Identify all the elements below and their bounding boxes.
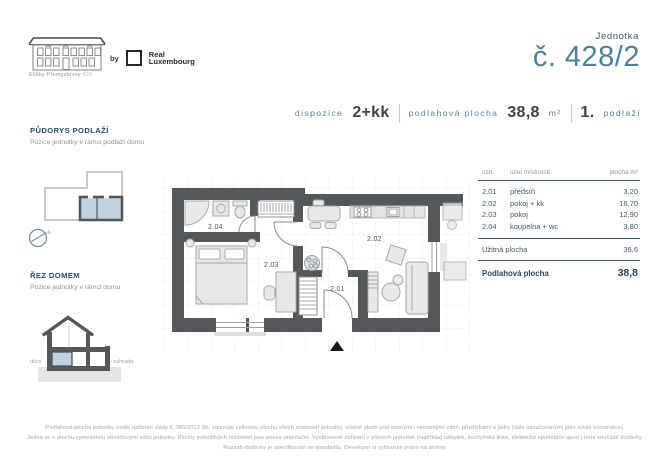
usable-area-row: Užitná plocha 36,6: [478, 239, 640, 260]
total-area-row: Podlahová plocha 38,8: [478, 261, 640, 285]
area-value: 38,8: [507, 104, 539, 122]
section-section-title: ŘEZ DOMEM: [30, 271, 80, 280]
room-label-201: 2.01: [330, 286, 345, 293]
area-unit: m²: [549, 108, 562, 118]
brand-logo: by Real Luxembourg: [110, 50, 195, 66]
room-label-203: 2.03: [264, 262, 279, 269]
building-address: Elišky Přemyslovny 428: [29, 72, 92, 78]
disclaimer-line: Rozsah dodávky je specifikován ve standa…: [20, 443, 650, 453]
bedside-lamp: [186, 239, 194, 247]
plan-section-subtitle: Pozice jednotky v rámci podlaží domu: [30, 139, 144, 146]
floor-position-minimap: s: [20, 163, 170, 255]
floorplan-datasheet-page: Elišky Přemyslovny 428 by Real Luxembour…: [0, 0, 670, 474]
table-row: 2.03 pokoj 12,90: [478, 209, 640, 221]
spec-line: dispozice 2+kk podlahová plocha 38,8 m² …: [180, 100, 641, 126]
floor-label: podlaží: [603, 108, 641, 118]
desk-chair: [264, 286, 275, 300]
unit-highlight-section: [52, 352, 72, 366]
unit-highlight: [80, 197, 122, 220]
compass-icon: s: [30, 230, 51, 247]
plan-section-title: PŮDORYS PODLAŽÍ: [30, 126, 109, 135]
washing-machine: [213, 201, 229, 216]
table-header: ozn. účel místnosti plocha m²: [478, 169, 640, 180]
brand-square-icon: [126, 50, 142, 66]
unit-number: č. 428/2: [533, 43, 640, 72]
sofa: [406, 262, 428, 314]
brand-by-label: by: [110, 54, 119, 66]
disclaimer-line: Podlahová plocha jednotky podle nařízení…: [20, 423, 650, 433]
bed: [196, 246, 247, 304]
unit-floorplan: 2.04 2.03 2.02 2.01: [155, 158, 485, 363]
room-label-204: 2.04: [208, 224, 223, 231]
section-section-subtitle: Pozice jednotky v rámci domu: [30, 284, 120, 291]
disclaimer: Podlahová plocha jednotky podle nařízení…: [20, 423, 650, 453]
disclaimer-line: Jedná se o plochu vymezenou obvodovými z…: [20, 433, 650, 443]
tall-cabinet: [368, 272, 378, 312]
stove: [354, 207, 371, 217]
building-street: Elišky Přemyslovny: [29, 72, 81, 78]
closet-wardrobe: [258, 201, 294, 217]
bedside-lamp: [248, 239, 256, 247]
building-number: 428: [83, 72, 93, 78]
plant: [305, 256, 320, 271]
kitchen-counter: [350, 206, 425, 218]
table-row: 2.04 koupelna + wc 3,80: [478, 221, 640, 233]
floor-value: 1.: [581, 104, 595, 122]
spec-divider: [571, 104, 572, 123]
house-section-drawing: ulice zahrada: [18, 303, 168, 391]
table-row: 2.02 pokoj + kk 16,70: [478, 198, 640, 210]
garden-label: zahrada: [113, 359, 134, 365]
roof: [44, 318, 92, 335]
spec-divider: [399, 104, 400, 123]
table-row: 2.01 předsíň 3,20: [478, 186, 640, 198]
brand-name: Real Luxembourg: [149, 51, 195, 66]
hall-wardrobe: [299, 277, 317, 315]
compass-label: s: [48, 230, 51, 236]
desk: [276, 272, 296, 312]
dispozice-value: 2+kk: [352, 104, 389, 122]
room-area-table: ozn. účel místnosti plocha m² 2.01 předs…: [478, 169, 640, 285]
toilet-bowl: [235, 206, 245, 218]
street-label: ulice: [30, 359, 42, 365]
pouf: [393, 275, 403, 285]
armchair: [382, 283, 400, 301]
room-label-202: 2.02: [367, 236, 382, 243]
dispozice-label: dispozice: [295, 108, 343, 118]
area-label: podlahová plocha: [409, 108, 499, 118]
toilet-tank: [233, 201, 247, 206]
